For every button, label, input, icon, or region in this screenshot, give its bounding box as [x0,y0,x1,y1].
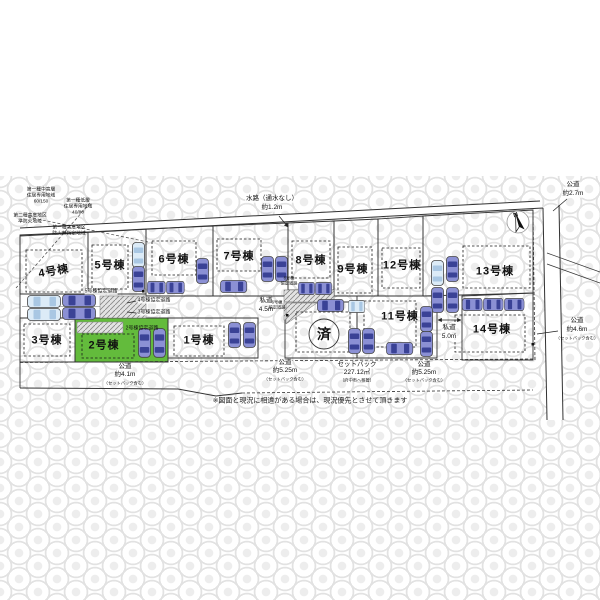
car-icon [462,299,482,311]
lot-label-2: 2号棟 [88,341,119,352]
car-icon [421,307,433,332]
southeast-road-note: （セットバック含む） [556,337,599,341]
south-road-a-width: 約4.1m [114,372,137,379]
zoning-note: 第一種低層 [66,199,90,204]
car-icon [133,243,145,268]
car-icon [363,329,375,354]
car-icon [483,299,503,311]
disclaimer-note: ※図面と現況に相違がある場合は、現況優先とさせて頂きます [213,398,408,405]
lot-label-8: 8号棟 [295,256,326,267]
site-plan-drawing [0,0,600,600]
south-road-a-note: （セットバック含む） [104,382,147,386]
agreement-road-3: 3号棟協定道路 [138,311,171,316]
car-icon [432,288,444,313]
setback-area: 227.12㎡ [343,370,371,377]
car-icon [447,257,459,282]
south-road-c-note: （セットバック含む） [403,379,446,383]
setback-note: （府中市へ移管） [340,379,374,383]
car-icon [166,282,184,294]
car-icon [349,329,361,354]
east-road-width: 約2.7m [562,191,585,198]
zoning-note: 防火無指定地域 [52,232,85,237]
zoning-note: 第二種高度地区 [13,214,46,219]
car-icon [63,308,96,320]
lot-label-9: 9号棟 [337,265,368,276]
car-icon [220,281,246,293]
car-icon [229,323,241,348]
south-road-b-label: 公道 [278,360,293,367]
lot-label-7: 7号棟 [223,252,254,263]
lot-outline-9 [334,219,378,296]
car-icon [421,332,433,357]
car-icon [244,323,256,348]
east-road-label: 公道 [566,182,581,189]
waterway-label: 水路（通水なし） [245,196,299,203]
setback-label: セットバック [337,362,378,369]
lot-label-11: 11号棟 [381,312,419,323]
agreement-road-6: 協定道路 [268,306,285,310]
car-icon [154,329,166,358]
agreement-road-2: 2号棟協定道路 [126,327,159,332]
car-icon [386,343,412,355]
lot-label-13: 13号棟 [476,267,514,278]
sold-mark: 済 [317,327,331,341]
site-plan: 第一種中高層 住居専用地域 60/150 第一種低層 住居専用地域 40/80 … [0,0,600,600]
agreement-road-5: 5号棟協定道路 [85,290,118,295]
car-icon [447,288,459,313]
lot-label-1: 1号棟 [183,336,214,347]
zoning-note: 40/80 [72,211,84,216]
car-icon [298,283,315,295]
car-icon [28,296,61,308]
south-road-c-label: 公道 [417,362,432,369]
car-icon [432,261,444,286]
lot-label-14: 14号棟 [473,325,511,336]
east-road [533,205,600,420]
zoning-note: 第一種高度地区 [52,226,85,231]
car-icon [133,267,145,292]
lot-label-6: 6号棟 [158,255,189,266]
agreement-road-8: 協定道路 [280,282,297,286]
zoning-note: 60/150 [34,200,49,205]
car-icon [147,282,165,294]
lot-outline-4 [20,232,88,294]
southeast-road-width: 約4.6m [566,327,589,334]
car-icon [139,329,151,358]
north-label: N [513,212,519,219]
car-icon [197,259,209,284]
car-icon [348,301,365,313]
car-icon [28,309,61,321]
southeast-road-label: 公道 [570,318,585,325]
south-road-b-note: （セットバック含む） [264,378,307,382]
private-road-east-label: 私道 [442,325,457,332]
zoning-note: 第一種中高層 [27,188,56,193]
waterway-width: 約1.2m [261,205,284,212]
zoning-note: 準防火地域 [18,220,42,225]
lot-label-12: 12号棟 [383,261,421,272]
car-icon [63,295,96,307]
south-road-a-label: 公道 [118,364,133,371]
zoning-note: 住居専用地域 [27,194,56,199]
agreement-road-4: 4号棟協定道路 [138,299,171,304]
lot-label-5: 5号棟 [94,261,125,272]
private-road-east-width: 5.0m [441,334,457,341]
car-icon [504,299,524,311]
south-road-b-width: 約5.25m [272,368,299,375]
south-road-c-width: 約5.25m [411,370,438,377]
zoning-note: 住居専用地域 [64,205,93,210]
lot-outline-12 [378,216,423,296]
lot-label-3: 3号棟 [31,336,62,347]
car-icon [262,257,274,282]
car-icon [315,283,332,295]
car-icon [317,300,343,312]
